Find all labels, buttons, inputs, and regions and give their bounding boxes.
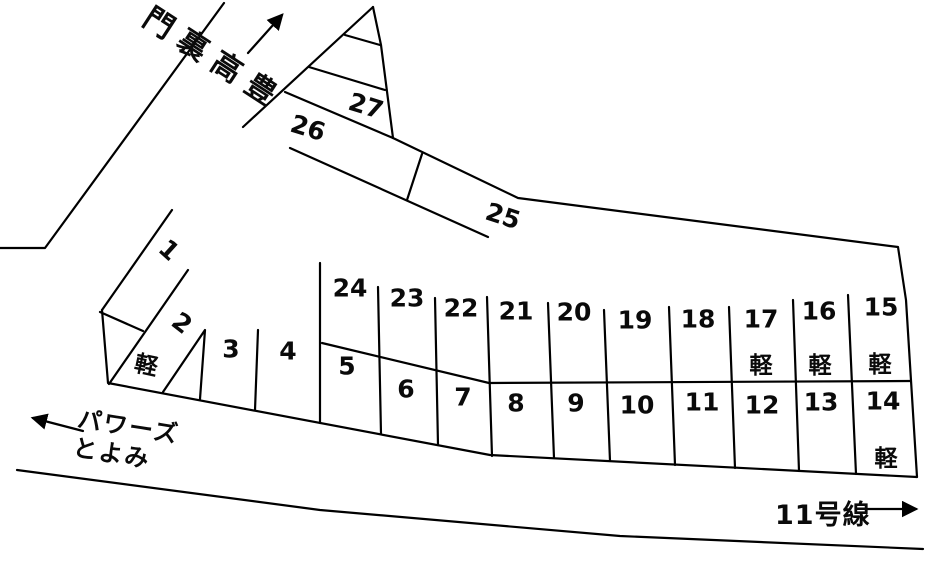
space-label-23: 23 [390,284,425,313]
space-label-6: 6 [397,375,414,404]
divider-26-25 [407,154,422,200]
space-label-4: 4 [279,337,296,366]
hatch-line-1 [345,35,380,45]
parking-map-drawing: 1 2 3 4 5 6 7 8 9 10 11 12 13 14 15 16 1… [0,0,940,566]
space-label-25: 25 [482,197,524,235]
divider-18-17 [729,307,735,468]
divider-20-19 [604,310,610,461]
strip-25-26-bottom-edge [290,148,488,237]
space-label-20: 20 [557,298,592,327]
space-label-1: 1 [153,233,185,266]
route11-label: 11号線 [775,493,871,532]
kei-label-space17: 軽 [750,353,774,379]
space-label-13: 13 [804,388,839,417]
space-label-19: 19 [618,306,653,335]
divider-2-3-wedge [163,330,205,399]
divider-22-21 [487,297,492,456]
space-label-16: 16 [802,297,837,326]
divider-3-4 [255,330,258,410]
divider-17-16 [793,300,799,471]
hatch-line-2 [309,67,385,90]
space-label-26: 26 [287,109,329,147]
space-label-2: 2 [166,306,198,340]
wedge-cut-line [100,312,143,331]
kei-label-space15: 軽 [869,352,893,378]
space-label-18: 18 [681,305,716,334]
divider-24-23 [378,287,381,434]
divider-19-18 [669,307,675,465]
space-label-24: 24 [333,274,368,303]
space-label-9: 9 [567,389,584,418]
kei-label-space2: 軽 [132,351,161,381]
parking-map: 1 2 3 4 5 6 7 8 9 10 11 12 13 14 15 16 1… [0,0,940,566]
space-label-11: 11 [685,388,720,417]
space-label-21: 21 [499,297,534,326]
space-label-8: 8 [507,389,524,418]
space-label-12: 12 [745,391,780,420]
kei-label-space14: 軽 [875,446,899,472]
space-label-15: 15 [864,293,899,322]
space-label-3: 3 [222,335,239,364]
road-direction-arrow-icon [248,15,282,53]
kei-label-space16: 軽 [809,353,833,379]
divider-21-20 [548,303,554,458]
divider-16-15 [848,295,856,474]
space-label-14: 14 [866,387,901,416]
space-label-17: 17 [744,305,779,334]
space-label-5: 5 [338,352,355,381]
space-label-7: 7 [454,383,471,412]
space-label-10: 10 [620,391,655,420]
space-label-22: 22 [444,294,479,323]
